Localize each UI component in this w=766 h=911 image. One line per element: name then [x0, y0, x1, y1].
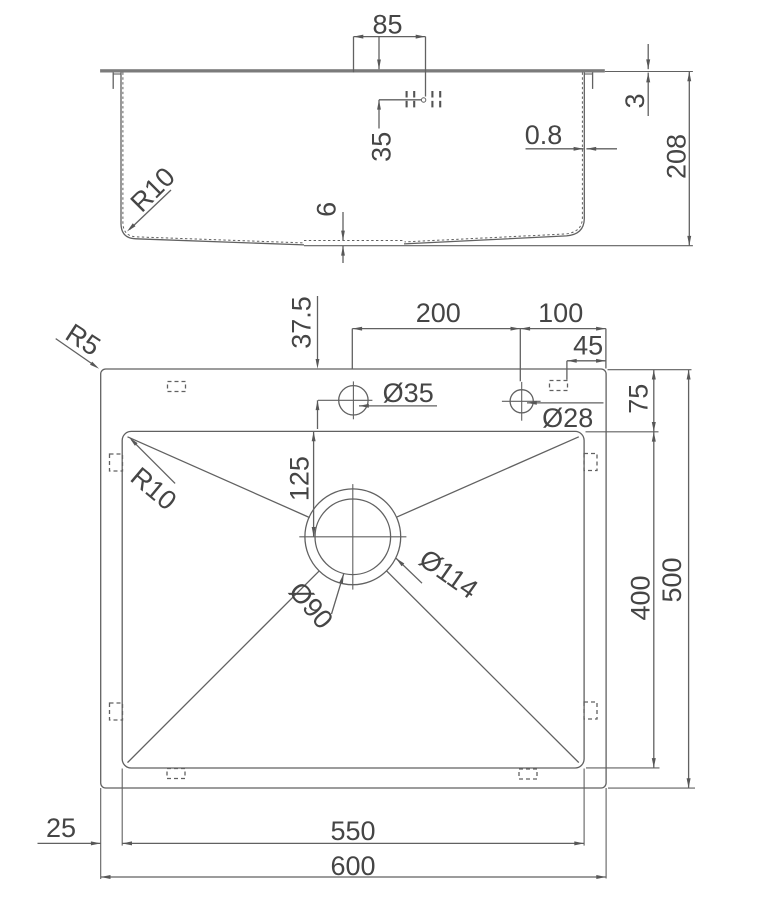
svg-text:550: 550	[330, 816, 375, 846]
svg-text:125: 125	[285, 456, 315, 501]
svg-text:100: 100	[538, 298, 583, 328]
svg-text:R5: R5	[60, 318, 105, 362]
svg-text:R10: R10	[125, 461, 182, 516]
svg-text:85: 85	[372, 10, 402, 40]
svg-text:500: 500	[657, 557, 687, 602]
svg-text:45: 45	[573, 331, 603, 361]
svg-text:400: 400	[626, 575, 656, 620]
svg-text:37.5: 37.5	[287, 296, 317, 349]
svg-text:Ø28: Ø28	[542, 403, 593, 433]
svg-text:Ø114: Ø114	[414, 543, 484, 604]
svg-text:200: 200	[416, 298, 461, 328]
svg-text:25: 25	[46, 813, 76, 843]
svg-text:75: 75	[623, 384, 653, 414]
svg-text:208: 208	[662, 134, 692, 179]
svg-text:Ø90: Ø90	[283, 576, 339, 634]
svg-text:6: 6	[312, 202, 342, 217]
svg-text:35: 35	[366, 132, 396, 162]
svg-text:R10: R10	[125, 162, 181, 218]
svg-text:Ø35: Ø35	[383, 378, 434, 408]
svg-text:3: 3	[620, 93, 650, 108]
svg-text:0.8: 0.8	[525, 120, 563, 150]
